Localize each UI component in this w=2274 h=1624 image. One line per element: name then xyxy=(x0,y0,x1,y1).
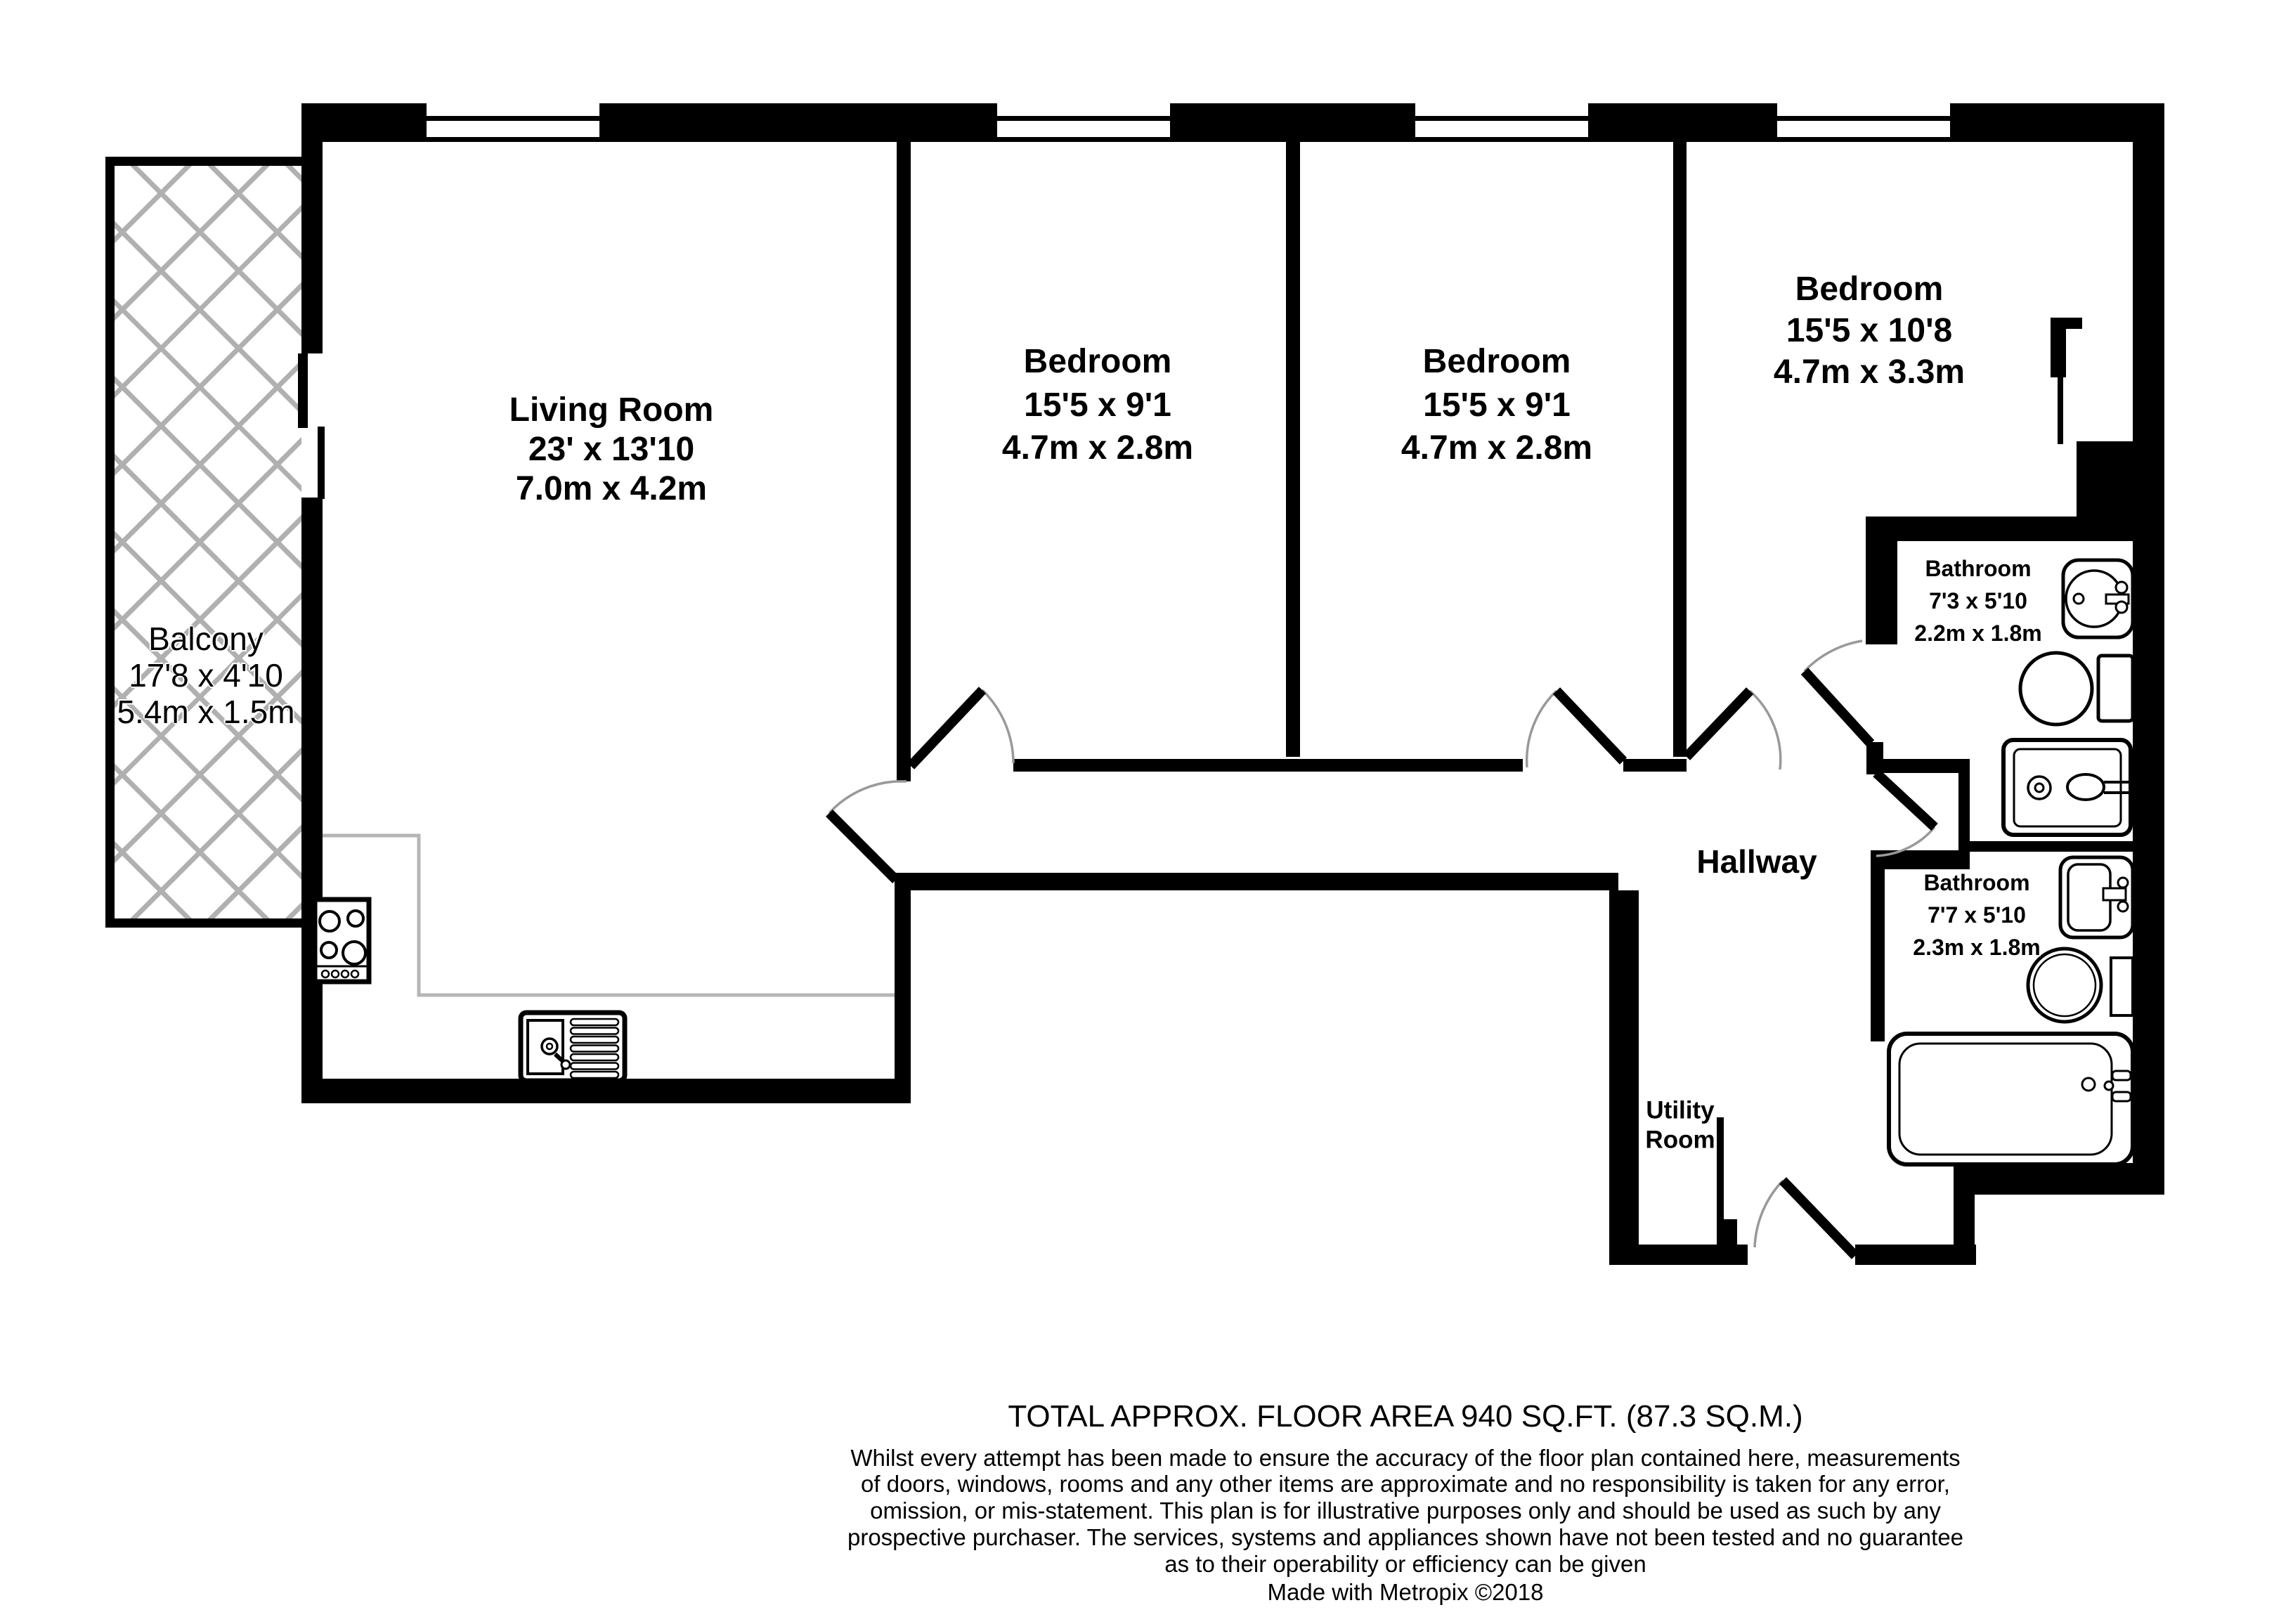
bedroom1-label: Bedroom xyxy=(1024,345,1172,379)
balcony-imperial: 17'8 x 4'10 xyxy=(129,659,283,691)
recess-wall xyxy=(2051,318,2082,329)
living-room-label: Living Room xyxy=(509,394,714,427)
exterior-wall-west xyxy=(301,103,323,353)
balcony-sliding-door xyxy=(298,353,325,499)
hallway-label: Hallway xyxy=(1696,845,1817,878)
bathroom-divider-wall xyxy=(1958,841,2133,852)
door-swing-icon xyxy=(1755,1181,1783,1247)
door-swing-icon xyxy=(1805,641,1862,671)
utility-east-wall xyxy=(1717,1219,1737,1246)
bedroom3-door xyxy=(1687,691,1750,757)
floor-plan-drawing xyxy=(0,0,2274,1624)
recess-wall xyxy=(2058,376,2063,444)
disclaimer-line: Whilst every attempt has been made to en… xyxy=(850,1445,1960,1472)
door-swing-icon xyxy=(1527,691,1557,767)
wall-basin-icon xyxy=(2060,857,2133,937)
bedroom1-imperial: 15'5 x 9'1 xyxy=(1024,389,1171,422)
utility-room-label: Room xyxy=(1645,1128,1715,1152)
living-room-metric: 7.0m x 4.2m xyxy=(516,472,707,506)
bedroom2-door xyxy=(1557,691,1623,761)
window-icon xyxy=(427,97,599,142)
credit-text: Made with Metropix ©2018 xyxy=(1267,1579,1543,1606)
bathroom1-label: Bathroom xyxy=(1925,557,2031,580)
bathroom1-imperial: 7'3 x 5'10 xyxy=(1929,590,2027,612)
bathroom2-west-wall xyxy=(1871,869,1885,1041)
bedroom1-metric: 4.7m x 2.8m xyxy=(1002,431,1193,465)
balcony-wall xyxy=(105,918,301,928)
entrance-door xyxy=(1783,1181,1855,1256)
door-swing-icon xyxy=(829,781,907,813)
bathtub-icon xyxy=(1889,1034,2133,1164)
exterior-wall-south xyxy=(1954,1163,2164,1195)
bedroom3-metric: 4.7m x 3.3m xyxy=(1774,356,1965,389)
balcony-wall xyxy=(105,157,301,166)
bathroom1-metric: 2.2m x 1.8m xyxy=(1914,622,2041,644)
recess-wall xyxy=(2077,441,2133,525)
exterior-wall-east xyxy=(2133,103,2164,1195)
exterior-wall-west xyxy=(301,498,323,1103)
stove-icon xyxy=(315,899,369,982)
door-swing-icon xyxy=(1750,691,1781,769)
utility-room-label: Utility xyxy=(1646,1098,1714,1123)
floor-plan: Living Room 23' x 13'10 7.0m x 4.2m Balc… xyxy=(0,0,2274,1624)
window-icon xyxy=(1415,97,1588,142)
hallway-south-wall xyxy=(895,873,1618,890)
kitchen-east-wall xyxy=(895,873,911,1103)
bathroom2-metric: 2.3m x 1.8m xyxy=(1913,936,2040,959)
bathroom2-door xyxy=(1876,773,1935,827)
hallway-north-wall xyxy=(1013,759,1523,772)
bedroom2-label: Bedroom xyxy=(1423,345,1571,379)
door-hinge-stub xyxy=(1866,742,1883,774)
pedestal-basin-icon xyxy=(2063,560,2133,637)
bedroom1-door xyxy=(911,690,982,766)
bedroom3-imperial: 15'5 x 10'8 xyxy=(1786,314,1952,348)
bathroom2-label: Bathroom xyxy=(1923,871,2029,894)
toilet-icon xyxy=(2028,949,2133,1022)
total-area-text: TOTAL APPROX. FLOOR AREA 940 SQ.FT. (87.… xyxy=(1008,1399,1802,1434)
kitchen-counter-line xyxy=(323,836,895,995)
living-room-imperial: 23' x 13'10 xyxy=(528,433,694,467)
bedroom2-imperial: 15'5 x 9'1 xyxy=(1423,389,1571,422)
door-swing-arcs xyxy=(829,641,1935,1247)
hallway-north-wall xyxy=(1883,759,1970,773)
window-icon xyxy=(997,97,1170,142)
utility-east-wall xyxy=(1717,1117,1724,1219)
bedroom2-bedroom3-wall xyxy=(1673,142,1687,757)
bedroom2-metric: 4.7m x 2.8m xyxy=(1401,431,1592,465)
disclaimer-line: omission, or mis-statement. This plan is… xyxy=(870,1498,1941,1524)
balcony-wall xyxy=(105,157,115,928)
bathroom1-door xyxy=(1805,671,1871,743)
door-swing-icon xyxy=(982,690,1013,763)
door-leaves xyxy=(829,671,1935,1256)
bedroom3-label: Bedroom xyxy=(1795,273,1944,306)
bathroom2-north-wall xyxy=(1871,850,1970,869)
balcony-metric: 5.4m x 1.5m xyxy=(117,696,294,728)
toilet-icon xyxy=(2020,653,2133,725)
window-icon xyxy=(1777,97,1950,142)
living-bedroom1-wall xyxy=(897,142,911,781)
bathroom2-imperial: 7'7 x 5'10 xyxy=(1928,904,2026,926)
balcony-label: Balcony xyxy=(148,623,264,655)
shower-icon xyxy=(2003,740,2133,835)
utility-west-wall xyxy=(1609,890,1639,1265)
disclaimer-line: as to their operability or efficiency ca… xyxy=(1164,1551,1646,1578)
bedroom1-bedroom2-wall xyxy=(1286,142,1300,757)
disclaimer-line: of doors, windows, rooms and any other i… xyxy=(861,1471,1950,1498)
hallway-north-wall xyxy=(1623,759,1687,772)
living-room-door xyxy=(829,813,896,880)
kitchen-sink-icon xyxy=(521,1013,625,1081)
exterior-wall-south xyxy=(1855,1245,1976,1265)
lobby-wall xyxy=(1958,773,1970,852)
disclaimer-line: prospective purchaser. The services, sys… xyxy=(847,1524,1963,1551)
